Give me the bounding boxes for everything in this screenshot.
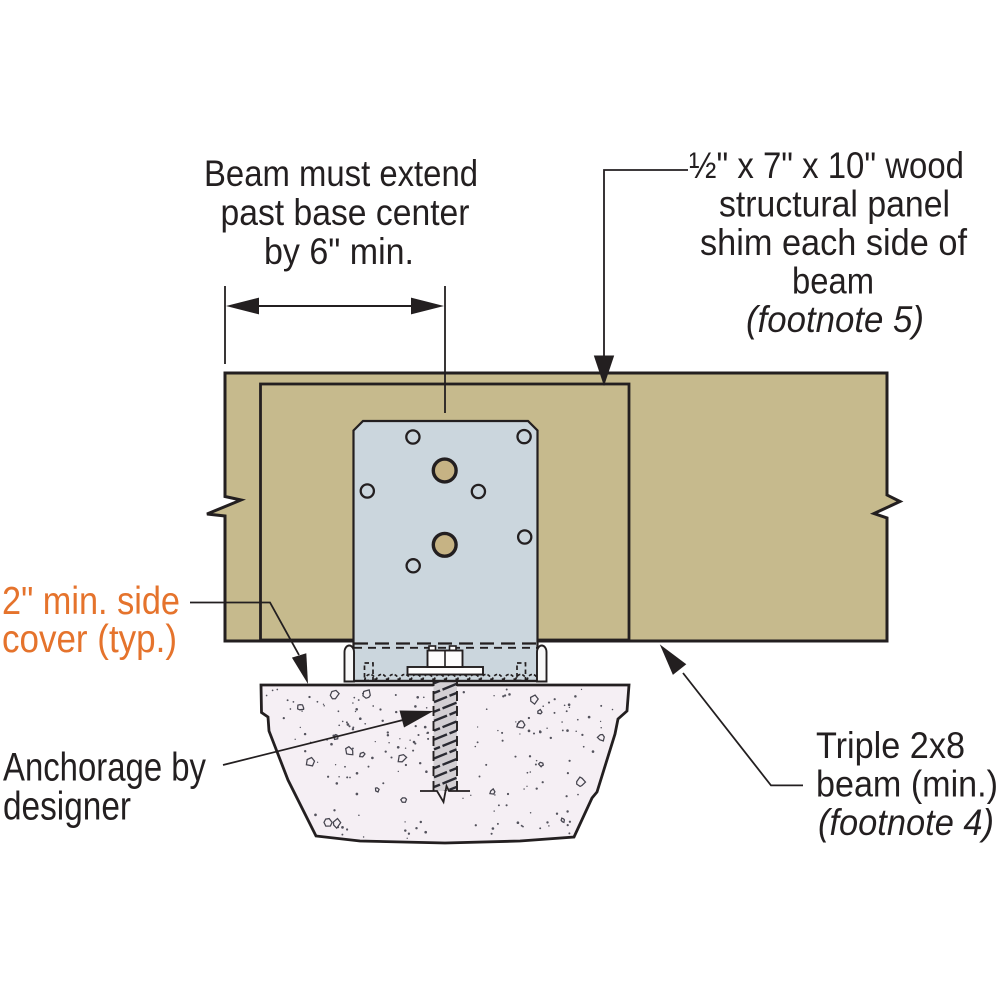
svg-text:2" min. side: 2" min. side: [2, 580, 180, 623]
svg-text:Anchorage by: Anchorage by: [3, 746, 206, 790]
svg-text:(footnote 5): (footnote 5): [746, 299, 924, 340]
svg-text:cover (typ.): cover (typ.): [2, 618, 177, 661]
svg-text:structural panel: structural panel: [719, 184, 950, 225]
svg-text:past base center: past base center: [221, 192, 470, 233]
svg-text:½" x 7" x 10" wood: ½" x 7" x 10" wood: [689, 145, 964, 186]
svg-text:beam: beam: [792, 261, 874, 302]
svg-text:Triple 2x8: Triple 2x8: [816, 725, 965, 766]
svg-text:by 6" min.: by 6" min.: [264, 231, 414, 272]
svg-text:(footnote 4): (footnote 4): [818, 802, 994, 843]
svg-text:shim each side of: shim each side of: [700, 222, 968, 263]
svg-text:Beam must extend: Beam must extend: [204, 153, 478, 194]
svg-text:designer: designer: [3, 785, 131, 829]
svg-text:beam (min.): beam (min.): [816, 764, 998, 805]
